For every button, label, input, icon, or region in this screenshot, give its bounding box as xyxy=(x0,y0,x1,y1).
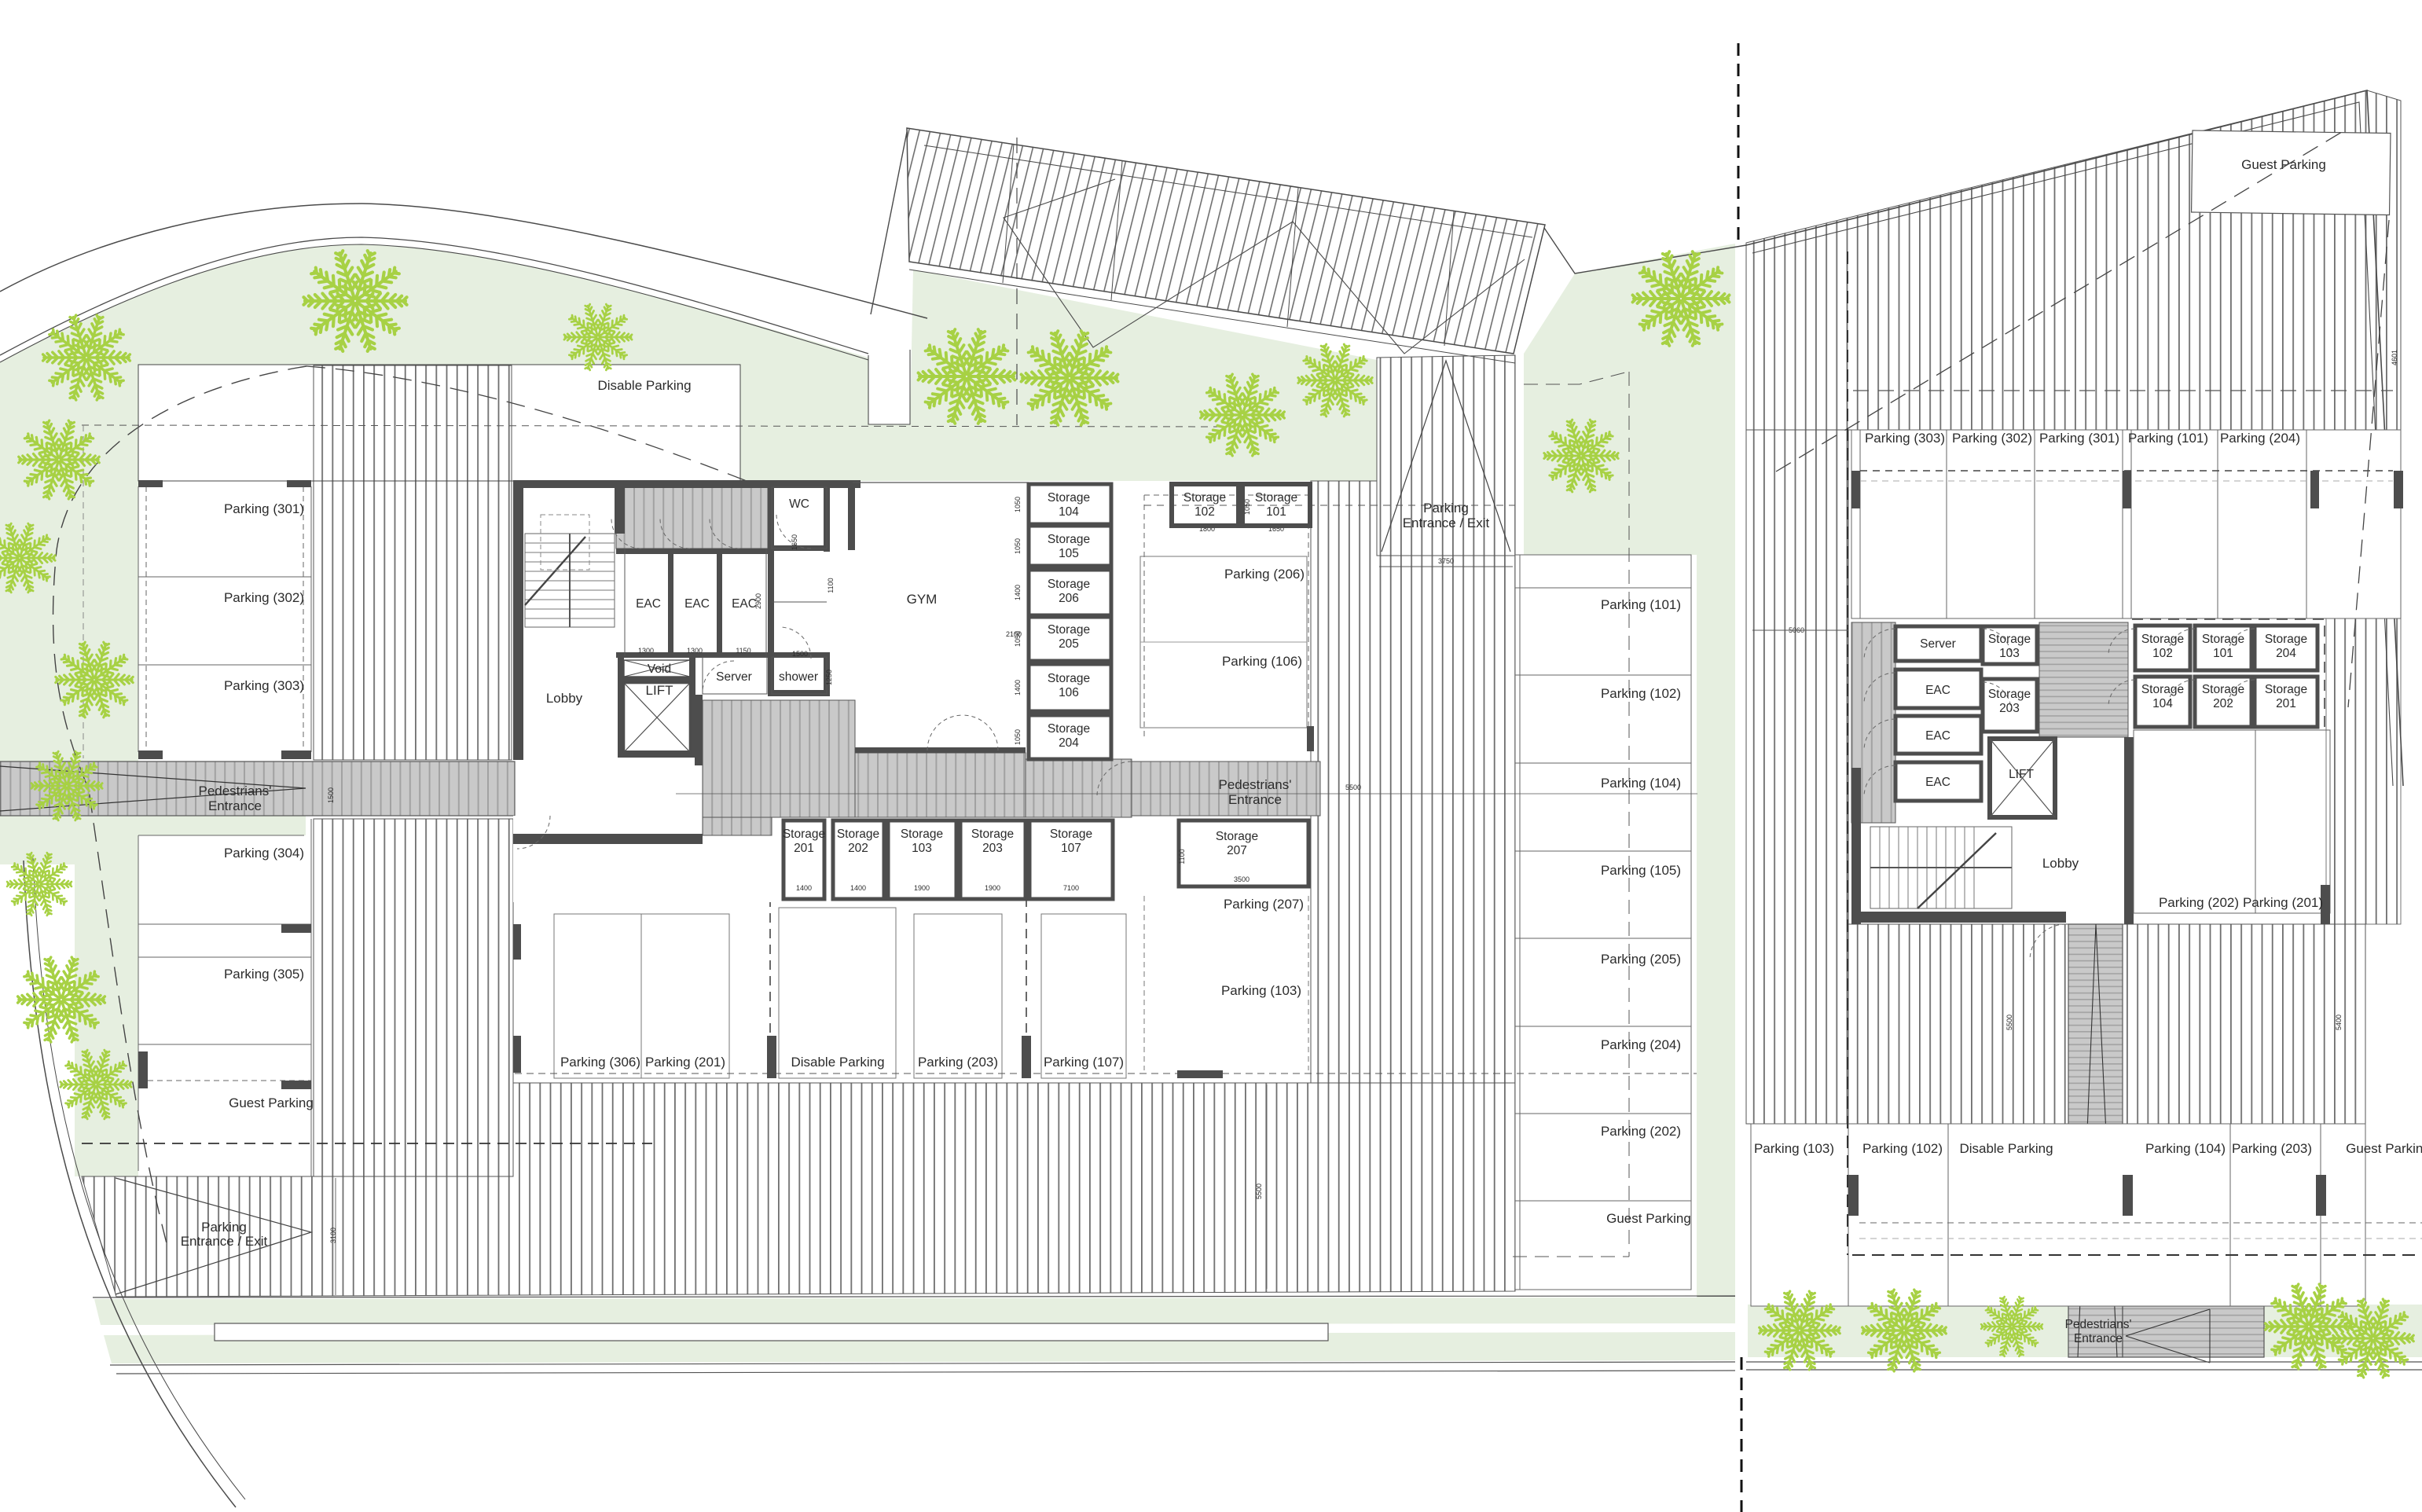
svg-text:Parking (202): Parking (202) xyxy=(2159,895,2239,910)
svg-text:Storage: Storage xyxy=(1048,623,1090,637)
svg-text:Storage: Storage xyxy=(2141,683,2184,696)
svg-text:Parking (203): Parking (203) xyxy=(918,1055,998,1070)
svg-text:Storage: Storage xyxy=(1048,491,1090,505)
svg-text:101: 101 xyxy=(2213,647,2233,660)
svg-text:Parking: Parking xyxy=(1423,501,1469,516)
svg-text:Storage: Storage xyxy=(2202,683,2244,696)
svg-text:206: 206 xyxy=(1059,592,1079,605)
svg-text:Storage: Storage xyxy=(971,828,1014,841)
svg-text:Storage: Storage xyxy=(1048,722,1090,736)
svg-text:Entrance: Entrance xyxy=(208,798,262,813)
svg-text:Lobby: Lobby xyxy=(2042,856,2079,871)
svg-text:Parking: Parking xyxy=(201,1220,247,1235)
svg-text:202: 202 xyxy=(2213,697,2233,710)
svg-text:207: 207 xyxy=(1227,844,1247,857)
svg-text:Storage: Storage xyxy=(1216,830,1258,843)
svg-text:Storage: Storage xyxy=(1988,633,2031,646)
svg-text:Storage: Storage xyxy=(1048,533,1090,546)
svg-text:Parking (101): Parking (101) xyxy=(1601,597,1681,612)
svg-text:1400: 1400 xyxy=(1014,680,1022,695)
svg-text:Parking (304): Parking (304) xyxy=(224,846,304,861)
svg-text:Parking (102): Parking (102) xyxy=(1862,1141,1943,1156)
svg-text:1400: 1400 xyxy=(1014,585,1022,600)
svg-text:201: 201 xyxy=(794,842,814,855)
svg-text:Parking (302): Parking (302) xyxy=(224,590,304,605)
svg-text:104: 104 xyxy=(1059,505,1079,519)
svg-text:1050: 1050 xyxy=(1014,497,1022,512)
svg-text:3500: 3500 xyxy=(1234,875,1250,883)
svg-text:EAC: EAC xyxy=(1925,729,1950,743)
svg-text:Storage: Storage xyxy=(2265,633,2307,646)
svg-text:1400: 1400 xyxy=(850,884,866,892)
svg-text:Storage: Storage xyxy=(1255,491,1297,505)
svg-text:Parking (104): Parking (104) xyxy=(1601,776,1681,791)
svg-text:1400: 1400 xyxy=(796,884,812,892)
svg-text:106: 106 xyxy=(1059,686,1079,699)
svg-text:Server: Server xyxy=(716,670,752,684)
svg-text:Pedestrians': Pedestrians' xyxy=(2065,1318,2132,1331)
svg-text:Parking (203): Parking (203) xyxy=(2232,1141,2312,1156)
svg-text:LIFT: LIFT xyxy=(2009,768,2034,781)
svg-text:1100: 1100 xyxy=(827,578,835,593)
svg-text:Storage: Storage xyxy=(1183,491,1226,505)
svg-text:Server: Server xyxy=(1920,637,1956,651)
svg-text:Parking (206): Parking (206) xyxy=(1224,567,1305,582)
svg-text:203: 203 xyxy=(982,842,1003,855)
svg-text:EAC: EAC xyxy=(732,597,757,611)
svg-text:Lobby: Lobby xyxy=(546,691,583,706)
svg-text:Parking (102): Parking (102) xyxy=(1601,686,1681,701)
svg-text:Disable Parking: Disable Parking xyxy=(597,378,691,393)
svg-text:Storage: Storage xyxy=(1050,828,1092,841)
svg-text:Storage: Storage xyxy=(2141,633,2184,646)
svg-text:EAC: EAC xyxy=(1925,684,1950,697)
svg-text:5500: 5500 xyxy=(1255,1184,1263,1199)
svg-text:Storage: Storage xyxy=(1988,688,2031,701)
svg-text:104: 104 xyxy=(2152,697,2173,710)
svg-text:Parking (205): Parking (205) xyxy=(1601,952,1681,967)
svg-text:2100: 2100 xyxy=(1006,630,1022,638)
svg-text:Parking (202): Parking (202) xyxy=(1601,1124,1681,1139)
svg-text:107: 107 xyxy=(1061,842,1081,855)
svg-text:Disable Parking: Disable Parking xyxy=(1959,1141,2053,1156)
svg-text:Pedestrians': Pedestrians' xyxy=(198,784,271,798)
svg-text:Parking (201): Parking (201) xyxy=(2243,895,2323,910)
svg-text:1500: 1500 xyxy=(327,787,335,803)
svg-text:1250: 1250 xyxy=(825,670,833,685)
svg-text:4601: 4601 xyxy=(2391,350,2398,365)
svg-text:WC: WC xyxy=(789,497,809,511)
svg-text:1100: 1100 xyxy=(1178,849,1186,864)
svg-text:Parking (103): Parking (103) xyxy=(1754,1141,1834,1156)
svg-text:202: 202 xyxy=(848,842,868,855)
svg-text:204: 204 xyxy=(1059,736,1079,750)
svg-text:Entrance: Entrance xyxy=(1228,792,1282,807)
svg-text:Parking (306): Parking (306) xyxy=(560,1055,640,1070)
svg-text:Parking (204): Parking (204) xyxy=(2220,431,2300,446)
svg-text:Void: Void xyxy=(648,662,671,676)
svg-text:1300: 1300 xyxy=(687,647,703,655)
svg-text:EAC: EAC xyxy=(1925,776,1950,789)
svg-text:1050: 1050 xyxy=(1014,538,1022,554)
svg-text:Parking (101): Parking (101) xyxy=(2128,431,2208,446)
svg-text:Storage: Storage xyxy=(783,828,825,841)
svg-text:Parking (104): Parking (104) xyxy=(2145,1141,2226,1156)
svg-text:1050: 1050 xyxy=(1014,729,1022,745)
svg-text:5500: 5500 xyxy=(1345,784,1361,791)
svg-text:Guest Parking: Guest Parking xyxy=(2346,1141,2422,1156)
svg-text:1300: 1300 xyxy=(638,647,654,655)
svg-text:Storage: Storage xyxy=(2265,683,2307,696)
svg-text:Parking (105): Parking (105) xyxy=(1601,863,1681,878)
svg-text:Storage: Storage xyxy=(837,828,879,841)
svg-text:EAC: EAC xyxy=(684,597,710,611)
svg-text:Storage: Storage xyxy=(1048,672,1090,685)
svg-text:Parking (305): Parking (305) xyxy=(224,967,304,982)
svg-text:Parking (301): Parking (301) xyxy=(2039,431,2119,446)
svg-text:Disable Parking: Disable Parking xyxy=(791,1055,884,1070)
svg-text:105: 105 xyxy=(1059,547,1079,560)
svg-text:Parking (207): Parking (207) xyxy=(1224,897,1304,912)
svg-text:Parking (106): Parking (106) xyxy=(1222,654,1302,669)
svg-text:Entrance / Exit: Entrance / Exit xyxy=(181,1234,268,1249)
svg-text:203: 203 xyxy=(1999,702,2020,715)
svg-text:3750: 3750 xyxy=(1438,557,1454,565)
svg-text:Pedestrians': Pedestrians' xyxy=(1218,777,1291,792)
svg-text:EAC: EAC xyxy=(636,597,661,611)
svg-text:204: 204 xyxy=(2276,647,2296,660)
svg-text:Storage: Storage xyxy=(1048,578,1090,591)
svg-text:Parking (201): Parking (201) xyxy=(645,1055,725,1070)
svg-text:1500: 1500 xyxy=(792,650,808,658)
svg-text:Guest Parking: Guest Parking xyxy=(2241,157,2326,172)
svg-text:Entrance / Exit: Entrance / Exit xyxy=(1403,516,1490,530)
svg-text:103: 103 xyxy=(1999,647,2020,660)
svg-text:7100: 7100 xyxy=(1063,884,1079,892)
svg-text:Storage: Storage xyxy=(2202,633,2244,646)
svg-text:1900: 1900 xyxy=(914,884,930,892)
svg-text:Parking (302): Parking (302) xyxy=(1952,431,2032,446)
svg-text:1150: 1150 xyxy=(736,647,750,655)
svg-text:Parking (103): Parking (103) xyxy=(1221,983,1301,998)
svg-text:Parking (107): Parking (107) xyxy=(1044,1055,1124,1070)
svg-text:102: 102 xyxy=(2152,647,2173,660)
svg-text:101: 101 xyxy=(1266,505,1286,519)
svg-text:103: 103 xyxy=(912,842,932,855)
svg-text:5500: 5500 xyxy=(2005,1015,2013,1030)
svg-text:3100: 3100 xyxy=(329,1228,337,1243)
svg-text:Parking (301): Parking (301) xyxy=(224,501,304,516)
svg-text:Parking (303): Parking (303) xyxy=(224,678,304,693)
svg-text:201: 201 xyxy=(2276,697,2296,710)
svg-text:Storage: Storage xyxy=(901,828,943,841)
svg-text:205: 205 xyxy=(1059,637,1079,651)
svg-text:5400: 5400 xyxy=(2335,1015,2343,1030)
svg-text:Parking (204): Parking (204) xyxy=(1601,1037,1681,1052)
svg-text:Parking (303): Parking (303) xyxy=(1865,431,1945,446)
svg-text:Guest Parking: Guest Parking xyxy=(229,1095,314,1110)
svg-text:102: 102 xyxy=(1194,505,1215,519)
svg-text:shower: shower xyxy=(779,670,818,684)
svg-text:Entrance: Entrance xyxy=(2074,1332,2123,1345)
svg-text:1900: 1900 xyxy=(985,884,1000,892)
svg-text:GYM: GYM xyxy=(907,592,938,607)
svg-text:Guest Parking: Guest Parking xyxy=(1606,1211,1691,1226)
svg-text:1650: 1650 xyxy=(791,534,798,550)
svg-text:LIFT: LIFT xyxy=(646,683,673,698)
